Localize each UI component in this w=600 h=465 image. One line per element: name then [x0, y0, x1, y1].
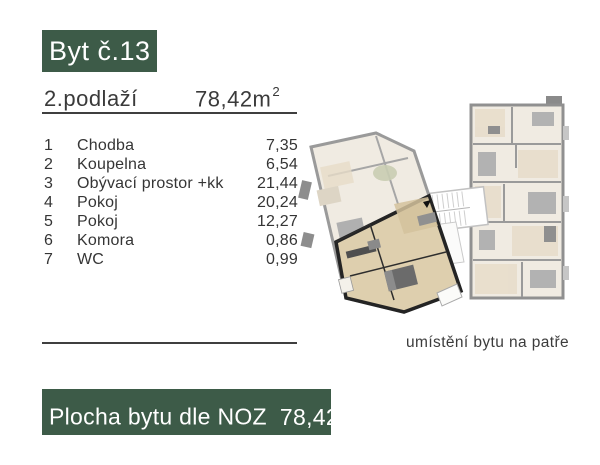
room-row: 6 Komora 0,86 [42, 231, 298, 250]
area-superscript: 2 [272, 84, 280, 99]
room-number: 7 [42, 251, 77, 269]
room-row: 7 WC 0,99 [42, 250, 298, 269]
rooms-table: 1 Chodba 7,35 2 Koupelna 6,54 3 Obývací … [42, 136, 298, 269]
room-area: 0,86 [266, 232, 298, 250]
room-name: Pokoj [77, 194, 257, 212]
room-row: 5 Pokoj 12,27 [42, 212, 298, 231]
room-number: 2 [42, 156, 77, 174]
room-area: 7,35 [266, 137, 298, 155]
room-row: 2 Koupelna 6,54 [42, 155, 298, 174]
room-area: 12,27 [257, 213, 298, 231]
footer-area-superscript: 2 [359, 402, 367, 417]
plan-caption: umístění bytu na patře [406, 334, 569, 352]
room-row: 4 Pokoj 20,24 [42, 193, 298, 212]
footer-label: Plocha bytu dle NOZ [49, 404, 267, 430]
room-area: 21,44 [257, 175, 298, 193]
room-row: 3 Obývací prostor +kk 21,44 [42, 174, 298, 193]
room-name: Komora [77, 232, 266, 250]
floor-plan-svg [298, 76, 592, 320]
room-name: Pokoj [77, 213, 257, 231]
room-number: 5 [42, 213, 77, 231]
room-name: Koupelna [77, 156, 266, 174]
floor-plan-image [298, 76, 592, 320]
room-number: 4 [42, 194, 77, 212]
unit-banner: Byt č.13 [42, 30, 157, 72]
footer-area-value: 78,42m [280, 404, 359, 430]
room-number: 6 [42, 232, 77, 250]
room-name: Chodba [77, 137, 266, 155]
unit-area: 78,42m2 [195, 86, 279, 112]
floor-label: 2.podlaží [44, 86, 138, 112]
divider-bottom [42, 342, 297, 344]
room-number: 1 [42, 137, 77, 155]
page: { "header": { "unit_title": "Byt č.13", … [0, 0, 600, 465]
footer-banner: Plocha bytu dle NOZ78,42m2 [42, 389, 331, 435]
room-number: 3 [42, 175, 77, 193]
room-area: 0,99 [266, 251, 298, 269]
room-row: 1 Chodba 7,35 [42, 136, 298, 155]
plan-right-wing [471, 96, 569, 298]
divider-top [42, 112, 297, 114]
room-area: 20,24 [257, 194, 298, 212]
room-name: Obývací prostor +kk [77, 175, 257, 193]
room-name: WC [77, 251, 266, 269]
unit-area-value: 78,42m [195, 86, 271, 111]
room-area: 6,54 [266, 156, 298, 174]
unit-title: Byt č.13 [49, 36, 151, 66]
